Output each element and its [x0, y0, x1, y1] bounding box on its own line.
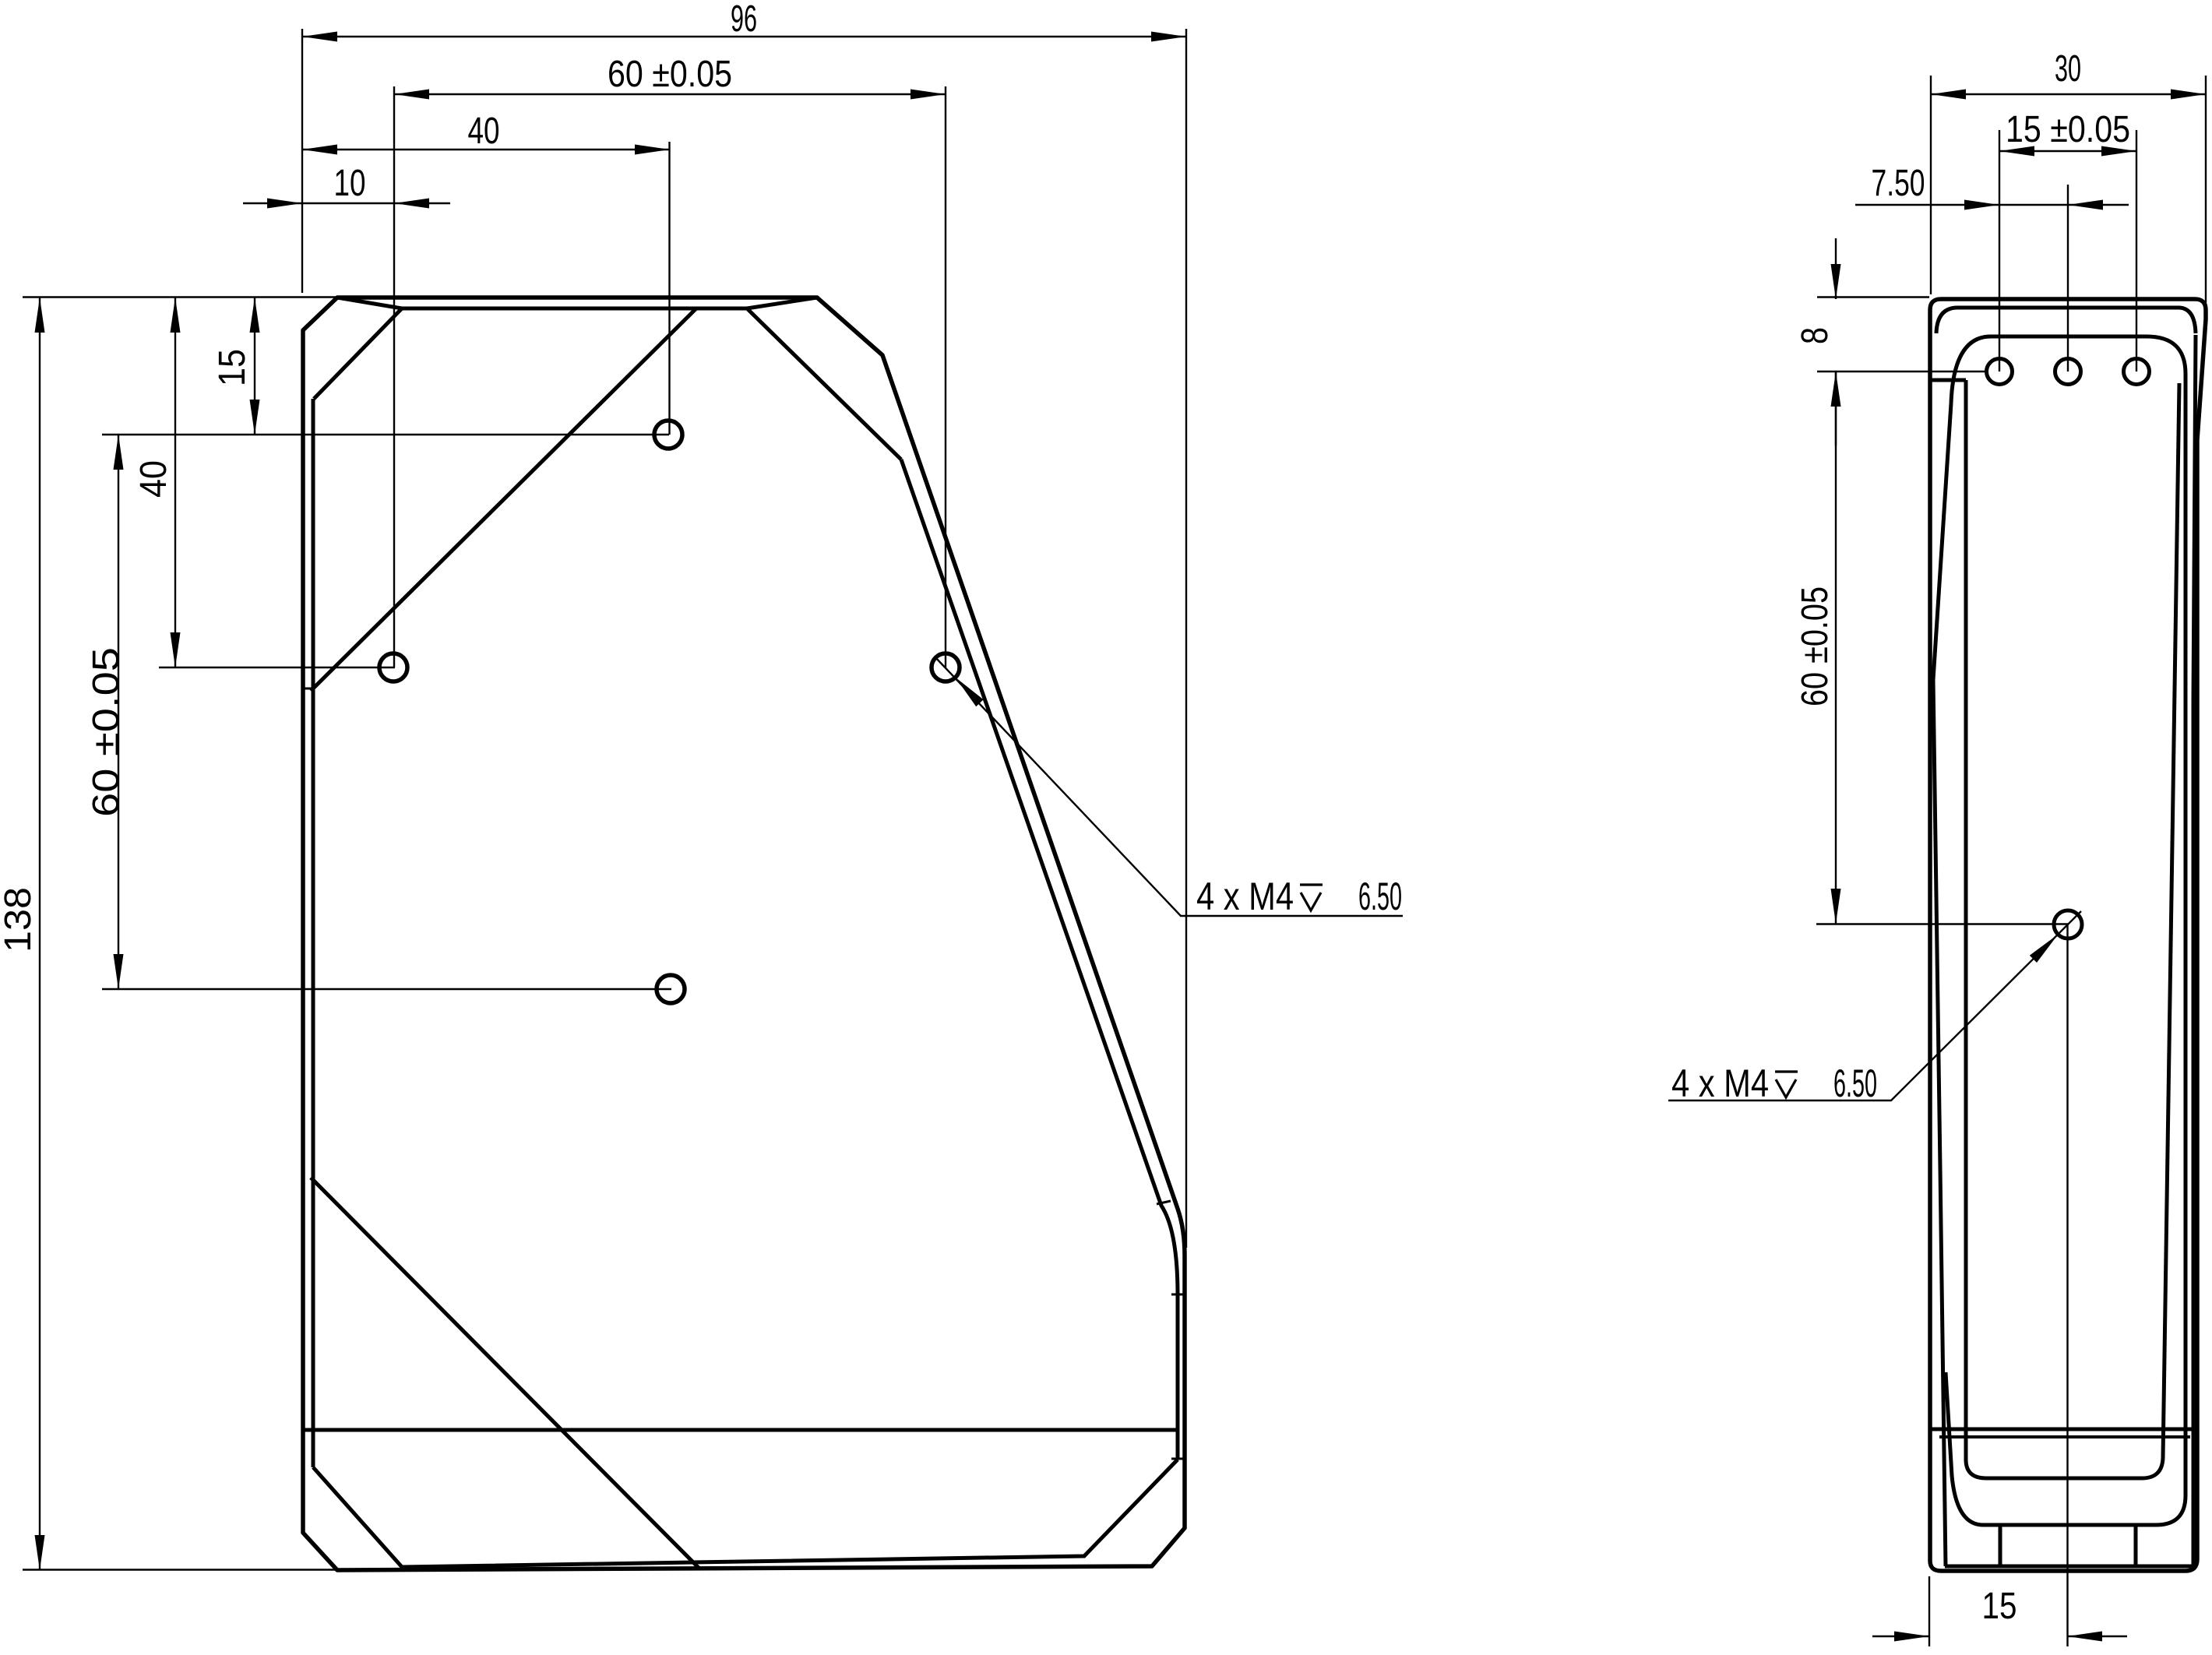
svg-text:40: 40: [468, 111, 500, 152]
svg-text:30: 30: [2055, 48, 2081, 90]
svg-text:4 x M4: 4 x M4: [1671, 1062, 1769, 1105]
svg-text:6.50: 6.50: [1833, 1062, 1877, 1105]
svg-text:15: 15: [212, 349, 253, 386]
svg-text:15: 15: [1982, 1586, 2017, 1627]
svg-text:4 x M4: 4 x M4: [1196, 875, 1294, 918]
svg-text:60 ±0.05: 60 ±0.05: [86, 647, 127, 817]
svg-text:10: 10: [334, 163, 366, 204]
svg-text:15 ±0.05: 15 ±0.05: [2006, 109, 2130, 150]
svg-text:96: 96: [731, 0, 757, 40]
svg-text:138: 138: [0, 887, 39, 953]
svg-text:7.50: 7.50: [1872, 163, 1925, 204]
svg-text:8: 8: [1795, 327, 1836, 344]
svg-text:40: 40: [133, 460, 174, 498]
svg-text:6.50: 6.50: [1358, 875, 1402, 918]
svg-text:60 ±0.05: 60 ±0.05: [1795, 586, 1836, 706]
svg-text:60 ±0.05: 60 ±0.05: [608, 54, 732, 95]
